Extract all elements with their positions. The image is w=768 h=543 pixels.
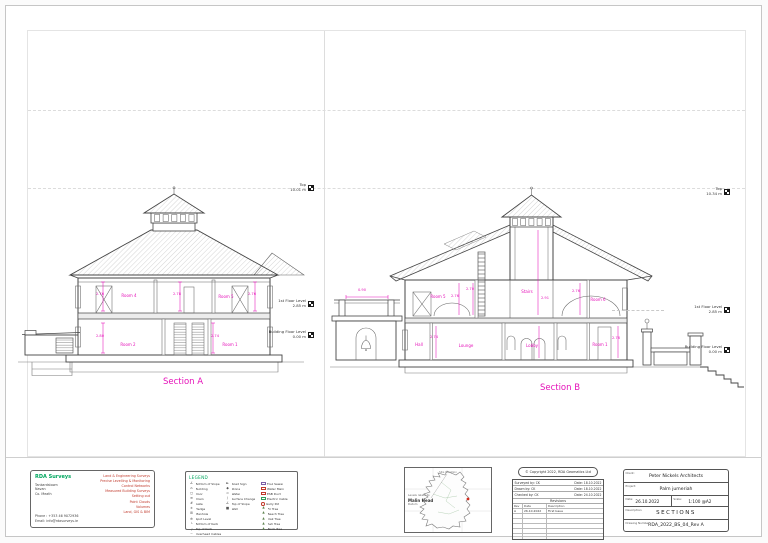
level-marker: Building Floor Level0.00 m: [656, 345, 730, 355]
dimension-label: 0.90: [358, 289, 366, 293]
legend-item-label: Birch Tree: [268, 527, 283, 531]
legend-item-label: Top of Slope: [232, 502, 250, 506]
room-label: Lounge: [459, 344, 474, 348]
benchmark-icon: [724, 307, 730, 313]
legend-item-label: Gate: [196, 502, 203, 506]
legend-item-label: Overhead Cables: [196, 532, 222, 536]
description-label: Description:: [626, 508, 643, 512]
legend-item-label: Road Sign: [232, 482, 247, 486]
slope-icon: ∠: [225, 502, 230, 505]
title-block-client-row: Client: Peter Nickels Architects: [624, 470, 728, 483]
level-leader-line: [612, 310, 664, 311]
legend-item-label: Hedge: [196, 507, 206, 511]
legend-item-label: Electric Cable: [267, 497, 288, 501]
scale-value: 1:100 @A2: [688, 499, 711, 504]
revision-cell: [523, 514, 547, 518]
circle-red-icon: [261, 502, 265, 506]
revision-cell: First Issue: [547, 509, 603, 513]
spot-level-icon: ⊕: [189, 518, 194, 521]
section-a-linework: [16, 183, 306, 383]
services-list: Land & Engineering SurveysPrecise Levell…: [93, 474, 150, 524]
gate-icon: #: [189, 502, 194, 505]
kerb-top-icon: ┌: [189, 528, 194, 531]
credit-date: Date: 18.10.2022: [574, 481, 601, 485]
site-marker-icon: [467, 498, 470, 501]
legend-item-label: Wall: [232, 507, 238, 511]
level-value: 0.00 m: [269, 335, 306, 340]
room-label: Hall: [415, 343, 423, 347]
date-value: 26.10.2022: [635, 499, 659, 504]
box-purple-icon: [261, 482, 266, 485]
legend-item-label: Ash Tree: [268, 522, 281, 526]
revision-row: [513, 534, 603, 539]
door-icon: ◻: [189, 492, 194, 495]
room-label: Room 1: [222, 343, 237, 347]
dimension-label: 2.76: [451, 295, 459, 299]
legend-item-label: Spot Level: [196, 517, 212, 521]
legend-item-label: Oak Tree: [268, 517, 281, 521]
revision-cell: [523, 519, 547, 523]
room-label: Room 6: [590, 298, 605, 302]
dimension-label: 2.80: [96, 335, 104, 339]
hedge-icon: ∗: [189, 507, 194, 510]
client-label: Client:: [626, 471, 635, 475]
dimension-label: 2.70: [466, 288, 474, 292]
tree-icon: ♣: [261, 523, 266, 526]
legend-item: ■Wall: [225, 506, 258, 511]
title-block-description-row: Description: SECTIONS: [624, 507, 728, 520]
revisions-rows: A26.10.2022First Issue: [513, 509, 603, 539]
tree-icon: ♣: [261, 507, 266, 510]
datum-line: [28, 110, 745, 111]
revision-cell: [513, 519, 523, 523]
drawing-number-label: Drawing Number:: [626, 521, 651, 525]
revision-cell: [513, 524, 523, 528]
credit-date: Date: 18.10.2022: [574, 487, 601, 491]
stone-icon: ◆: [225, 487, 230, 490]
title-block: Client: Peter Nickels Architects Project…: [623, 469, 729, 532]
credit-role: Surveyed by: CK: [515, 481, 540, 485]
service-item: Land, GIS & BIM: [93, 510, 150, 515]
revision-cell: [513, 534, 523, 539]
copyright-pill: © Copyright 2022, RDA Geomatics Ltd: [518, 467, 598, 477]
section-b-drawing: Room 5 2.76 2.70 Stairs 2.91 2.76 Room 6…: [326, 180, 746, 402]
legend-item-label: Bottom of Slope: [196, 482, 220, 486]
legend-item-label: Gully Pot: [266, 502, 279, 506]
dimension-label: 2.91: [541, 297, 549, 301]
revision-header-cell: Rev: [513, 504, 523, 508]
revision-cell: [547, 529, 603, 533]
legend-item-label: ESB Duct: [267, 492, 281, 496]
level-value: 10.01 m: [290, 188, 306, 193]
dimension-label: 2.76: [248, 293, 256, 297]
room-label: Room 2: [120, 343, 135, 347]
level-value: 2.85 m: [278, 304, 306, 309]
scale-label: Scale:: [673, 497, 681, 501]
revision-header-cell: Date: [523, 504, 547, 508]
level-value: 0.00 m: [685, 350, 722, 355]
revision-cell: [523, 524, 547, 528]
dimension-label: 2.78: [173, 293, 181, 297]
water-icon: ≈: [225, 492, 230, 495]
dimension-label: 2.76: [612, 337, 620, 341]
copyright-block: © Copyright 2022, RDA Geomatics Ltd Surv…: [512, 466, 604, 532]
location-map-block: Site Location Levels relate to Malin Hea…: [404, 467, 492, 533]
tree-icon: ♣: [261, 528, 266, 531]
manhole-icon: ⊞: [189, 512, 194, 515]
revision-cell: [513, 529, 523, 533]
project-label: Project:: [626, 484, 637, 488]
benchmark-icon: [308, 301, 314, 307]
legend-item-label: Bottom of Kerb: [196, 522, 219, 526]
legend-item-label: Fir Tree: [268, 507, 279, 511]
level-value: 10.34 m: [706, 192, 722, 197]
legend-item-label: Foul Sewer: [267, 482, 283, 486]
level-marker: Top10.01 m: [262, 183, 314, 193]
project-name: Palm jumeriah: [660, 487, 693, 492]
description-value: SECTIONS: [656, 510, 696, 516]
title-block-date-scale-row: Date: 26.10.2022 Scale: 1:100 @A2: [624, 496, 728, 507]
revision-cell: [547, 519, 603, 523]
surveyor-name: RDA Surveys: [35, 474, 91, 480]
revision-cell: [547, 524, 603, 528]
section-a-drawing: 2.76 2.78 2.76 Room 4 Room 5 2.80 2.74 R…: [16, 183, 306, 397]
room-label: Room 4: [121, 294, 136, 298]
box-red-icon: [261, 487, 266, 490]
building-icon: ⌂: [189, 487, 194, 490]
legend-block: LEGEND ∠Bottom of Slope⌂Building◻Door≡Dr…: [185, 471, 298, 530]
date-label: Date:: [626, 497, 634, 501]
dimension-label: 2.74: [211, 335, 219, 339]
drain-icon: ≡: [189, 497, 194, 500]
copyright-notice: © Copyright 2022, RDA Geomatics Ltd: [525, 470, 591, 474]
level-value: 2.85 m: [694, 310, 722, 315]
credits-revisions-table: Surveyed by: CK Date: 18.10.2022 Drawn b…: [512, 479, 604, 540]
revision-cell: [547, 534, 603, 539]
revision-cell: [547, 514, 603, 518]
credit-role: Drawn by: CK: [515, 487, 536, 491]
map-title: Site Location: [439, 470, 457, 474]
kerb-bottom-icon: └: [189, 523, 194, 526]
dimension-label: 2.74: [430, 336, 438, 340]
revision-cell: 26.10.2022: [523, 509, 547, 513]
sign-icon: ►: [225, 482, 230, 485]
tree-icon: ♣: [261, 512, 266, 515]
legend-item: ~Overhead Cables: [189, 532, 222, 537]
revision-cell: A: [513, 509, 523, 513]
wall-icon: ■: [225, 507, 230, 510]
drawing-number-value: RDA_2022_BS_04_Rev A: [648, 523, 704, 528]
room-label: Stairs: [521, 290, 532, 294]
legend-item-label: Top of Kerb: [196, 527, 213, 531]
legend-item-label: Door: [196, 492, 203, 496]
legend-title: LEGEND: [189, 475, 294, 480]
benchmark-icon: [724, 189, 730, 195]
cables-icon: ~: [189, 533, 194, 536]
level-marker: 1st Floor Level2.85 m: [666, 305, 730, 315]
legend-column: ∠Bottom of Slope⌂Building◻Door≡Drain#Gat…: [189, 481, 222, 537]
legend-column: ►Road Sign◆Stone≈Water/Surface Change∠To…: [225, 481, 258, 537]
surface-icon: /: [225, 497, 230, 500]
legend-column: Foul SewerWater MainESB DuctElectric Cab…: [261, 481, 294, 537]
room-label: Lobby: [526, 344, 538, 348]
box-red-icon: [261, 492, 266, 495]
level-marker: 1st Floor Level2.85 m: [250, 299, 314, 309]
legend-item-label: Beech Tree: [268, 512, 285, 516]
benchmark-icon: [724, 347, 730, 353]
datum-note: Datum: [408, 503, 433, 507]
room-label: Room 5: [430, 295, 445, 299]
legend-item-label: Surface Change: [232, 497, 256, 501]
legend-item: ♣Birch Tree: [261, 527, 294, 532]
address-line: Co. Meath: [35, 492, 91, 497]
legend-item-label: Drain: [196, 497, 204, 501]
section-a-title: Section A: [163, 377, 203, 387]
tree-icon: ♣: [261, 518, 266, 521]
level-marker: Building Floor Level0.00 m: [240, 330, 314, 340]
revision-header-cell: Description: [547, 504, 603, 508]
slope-icon: ∠: [189, 482, 194, 485]
surveyor-card: RDA Surveys Tankardstown Navan Co. Meath…: [30, 470, 155, 528]
title-block-number-row: Drawing Number: RDA_2022_BS_04_Rev A: [624, 520, 728, 531]
section-b-title: Section B: [540, 383, 580, 393]
legend-item-label: Manhole: [196, 512, 209, 516]
title-block-project-row: Project: Palm jumeriah: [624, 483, 728, 496]
room-label: Room 5: [218, 295, 233, 299]
credit-date: Date: 24.10.2022: [574, 493, 601, 497]
client-name: Peter Nickels Architects: [649, 474, 703, 479]
legend-item-label: Building: [196, 487, 208, 491]
viewport-divider: [324, 31, 325, 457]
section-b-linework: [326, 180, 746, 395]
credit-role: Checked by: CK: [515, 493, 539, 497]
dimension-label: 2.76: [572, 290, 580, 294]
revision-cell: [523, 534, 547, 539]
title-band-separator: [6, 457, 762, 458]
legend-item-label: Stone: [232, 487, 241, 491]
box-green-icon: [261, 497, 266, 500]
benchmark-icon: [308, 332, 314, 338]
revision-cell: [513, 514, 523, 518]
dimension-label: 2.76: [96, 293, 104, 297]
room-label: Room 1: [592, 343, 607, 347]
surveyor-email: Email: info@rdasurveys.ie: [35, 519, 91, 524]
benchmark-icon: [308, 185, 314, 191]
revision-cell: [523, 529, 547, 533]
legend-item-label: Water Main: [267, 487, 284, 491]
level-marker: Top10.34 m: [678, 187, 730, 197]
legend-item-label: Water: [232, 492, 241, 496]
